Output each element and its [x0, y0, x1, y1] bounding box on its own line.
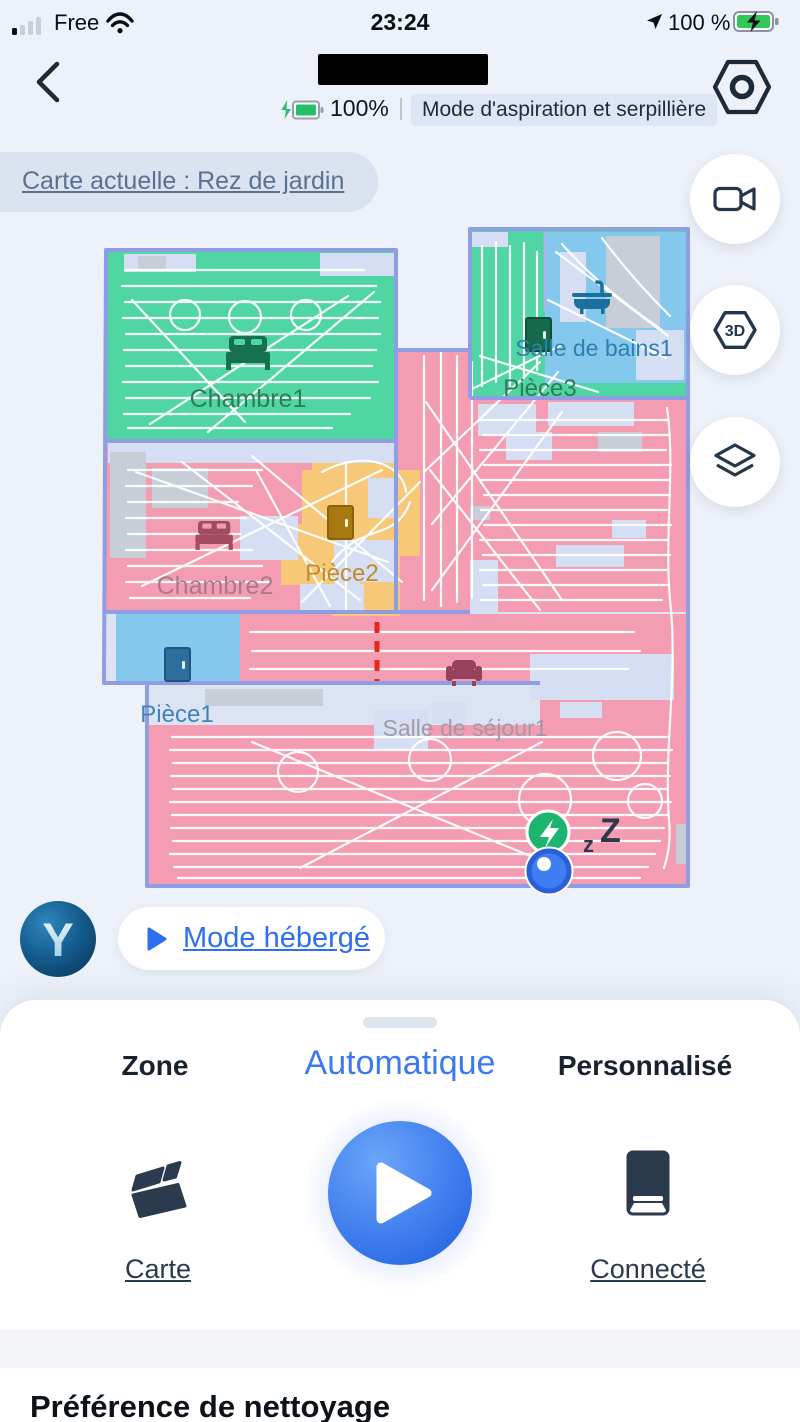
dock-status-icon[interactable] [620, 1150, 676, 1222]
room-label-piece1: Pièce1 [140, 701, 213, 728]
floor-map[interactable]: Chambre1 Salle de bains1 Pièce3 Chambre2… [95, 222, 695, 898]
play-triangle-icon [146, 926, 168, 952]
current-map-banner[interactable]: Carte actuelle : Rez de jardin [0, 152, 378, 212]
sleep-z-small: z [583, 832, 594, 857]
back-chevron-icon[interactable] [34, 60, 64, 104]
room-label-salle-de-bains1: Salle de bains1 [515, 335, 672, 361]
robot-position-icon [526, 848, 572, 894]
battery-charging-icon [733, 10, 783, 34]
section-divider [0, 1330, 800, 1368]
section-heading: Préférence de nettoyage [30, 1389, 390, 1422]
map-action-icon[interactable] [122, 1154, 194, 1220]
three-d-view-button[interactable]: 3D [690, 285, 780, 375]
signal-bars-icon [12, 16, 44, 36]
door-icon [328, 506, 353, 539]
start-cleaning-button[interactable] [328, 1121, 472, 1265]
tab-automatique[interactable]: Automatique [275, 1044, 525, 1083]
svg-text:3D: 3D [725, 323, 745, 340]
hosted-mode-button[interactable]: Mode hébergé [118, 907, 385, 970]
video-camera-button[interactable] [690, 154, 780, 244]
video-camera-icon [713, 184, 757, 214]
settings-gear-icon[interactable] [712, 57, 772, 117]
app-screen: Free 23:24 100 % 100% | Mode d'as [0, 0, 800, 1422]
sheet-drag-handle[interactable] [363, 1017, 437, 1028]
door-icon [165, 648, 190, 681]
room-label-chambre1: Chambre1 [190, 385, 307, 413]
room-label-chambre2: Chambre2 [157, 572, 274, 600]
cleaning-mode-badge: Mode d'aspiration et serpillière [411, 94, 717, 126]
hosted-mode-label: Mode hébergé [183, 922, 370, 955]
sleep-z-big: Z [600, 812, 621, 850]
tab-personnalise[interactable]: Personnalisé [535, 1050, 755, 1082]
clock: 23:24 [340, 9, 460, 36]
status-bar: Free 23:24 100 % [0, 0, 800, 44]
charging-battery-icon [280, 98, 328, 124]
room-label-salle-de-sejour1: Salle de séjour1 [383, 715, 548, 741]
map-layers-button[interactable] [690, 417, 780, 507]
room-label-piece3: Pièce3 [503, 375, 576, 402]
play-icon [375, 1161, 439, 1225]
carrier-label: Free [54, 10, 99, 36]
location-arrow-icon [646, 13, 664, 31]
dock-status-label[interactable]: Connecté [578, 1254, 718, 1285]
wifi-icon [106, 12, 134, 34]
robot-brand-avatar: Y [20, 901, 96, 977]
map-action-label[interactable]: Carte [88, 1254, 228, 1285]
three-d-icon: 3D [712, 307, 758, 353]
layers-icon [713, 443, 757, 481]
device-name-redacted [318, 54, 488, 85]
room-label-piece2: Pièce2 [305, 560, 378, 587]
robot-battery-label: 100% [330, 95, 389, 122]
battery-percent-label: 100 % [668, 10, 730, 36]
tab-zone[interactable]: Zone [95, 1050, 215, 1082]
status-divider: | [398, 94, 404, 121]
current-map-label: Carte actuelle : Rez de jardin [22, 167, 344, 196]
brand-letter: Y [42, 913, 73, 966]
